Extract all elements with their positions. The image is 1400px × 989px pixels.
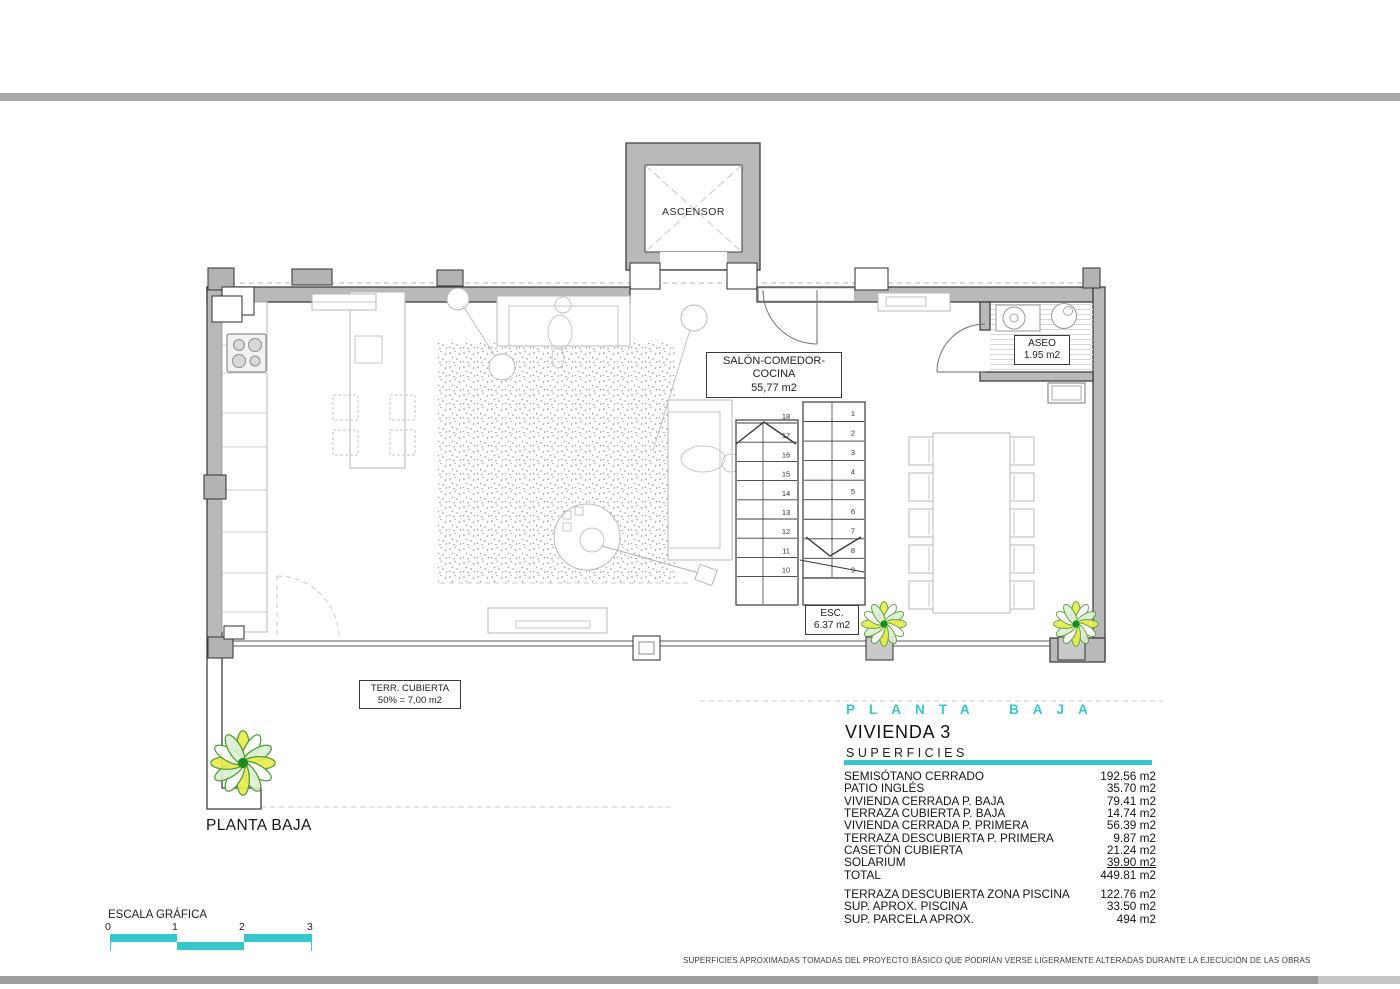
bottom-frame-bar-end	[1318, 976, 1400, 984]
stairs-name: ESC.	[809, 608, 855, 620]
scale-tick: 2	[239, 921, 245, 933]
stair-step-number: 15	[782, 470, 790, 479]
stairs-area: 6.37 m2	[809, 620, 855, 632]
surface-row-value: 494 m2	[1117, 913, 1156, 925]
surface-row-label: SUP. PARCELA APROX.	[844, 913, 974, 925]
terrace-label-box: TERR. CUBIERTA 50% = 7,00 m2	[359, 680, 461, 709]
sink-icon	[1052, 304, 1077, 329]
stair-step-number: 13	[782, 508, 790, 517]
scale-end-tick	[110, 934, 111, 951]
floor-lamp-icon	[681, 305, 707, 331]
stair-step-number: 14	[782, 489, 790, 498]
surface-row-value: 449.81 m2	[1100, 869, 1156, 881]
floor-plan-sheet: 181716151413121110 123456789 ASCENSOR	[0, 0, 1400, 989]
bottom-frame-bar	[0, 976, 1318, 984]
surfaces-rows: SEMISÓTANO CERRADO192.56 m2PATIO INGLÉS3…	[844, 770, 1156, 881]
ascensor-label: ASCENSOR	[645, 206, 742, 218]
stair-step-number: 12	[782, 527, 790, 536]
floor-caption: PLANTA BAJA	[206, 817, 312, 835]
surface-row-label: TOTAL	[844, 869, 881, 881]
plant-icon	[211, 731, 275, 795]
aseo-label-box: ASEO 1.95 m2	[1014, 335, 1070, 365]
stair-step-number: 7	[851, 526, 855, 535]
surface-row: SUP. APROX. PISCINA33.50 m2	[844, 900, 1156, 912]
surface-row-value: 39.90 m2	[1107, 856, 1156, 868]
stair-step-number: 1	[851, 409, 855, 418]
accent-divider-bar	[844, 760, 1152, 765]
graphic-scale: ESCALA GRÁFICA 0 1 2 3	[75, 908, 415, 956]
aseo-room-name: ASEO	[1018, 338, 1066, 350]
salon-room-name: SALÓN-COMEDOR-COCINA	[710, 355, 838, 382]
stair-step-number: 8	[851, 546, 855, 555]
scale-bar-title: ESCALA GRÁFICA	[108, 909, 207, 921]
dining-set	[909, 433, 1034, 613]
surface-row: VIVIENDA CERRADA P. PRIMERA56.39 m2	[844, 819, 1156, 831]
stair-step-number: 2	[851, 429, 855, 438]
stair-step-number: 10	[782, 566, 790, 575]
stair-step-number: 6	[851, 507, 855, 516]
washer-icon	[1003, 307, 1025, 329]
surface-row-value: 33.50 m2	[1107, 900, 1156, 912]
floor-heading: PLANTA BAJA	[846, 702, 1102, 717]
surfaces-table: SEMISÓTANO CERRADO192.56 m2PATIO INGLÉS3…	[844, 770, 1156, 925]
stairs-label-box: ESC. 6.37 m2	[805, 605, 859, 635]
surfaces-heading: SUPERFICIES	[846, 746, 968, 760]
stair-step-number: 4	[851, 468, 855, 477]
unit-heading: VIVIENDA 3	[845, 722, 951, 743]
scale-tick: 3	[307, 921, 313, 933]
scale-segment	[177, 942, 244, 950]
stair-step-number: 11	[782, 546, 790, 555]
scale-segment	[244, 934, 311, 942]
surface-row-label: VIVIENDA CERRADA P. PRIMERA	[844, 819, 1029, 831]
surface-row-label: SOLARIUM	[844, 856, 906, 868]
scale-end-tick	[311, 934, 312, 951]
surface-row-value: 56.39 m2	[1107, 819, 1156, 831]
salon-room-area: 55,77 m2	[710, 382, 838, 395]
stair-step-number: 3	[851, 448, 855, 457]
stairs: 181716151413121110 123456789	[736, 402, 865, 605]
surface-row-label: PATIO INGLÉS	[844, 782, 924, 794]
disclaimer-text: SUPERFICIES APROXIMADAS TOMADAS DEL PROY…	[683, 956, 1310, 965]
surface-row-value: 35.70 m2	[1107, 782, 1156, 794]
scale-segment	[110, 934, 177, 942]
stair-step-number: 16	[782, 450, 790, 459]
surface-row-label: SUP. APROX. PISCINA	[844, 900, 968, 912]
terrace-name: TERR. CUBIERTA	[363, 683, 457, 695]
surface-row: SOLARIUM39.90 m2	[844, 856, 1156, 868]
plants	[211, 602, 1099, 796]
terrace-area: 50% = 7,00 m2	[363, 695, 457, 707]
stair-step-number: 18	[782, 412, 790, 421]
surface-row: TOTAL449.81 m2	[844, 869, 1156, 881]
floor-lamp-icon	[447, 288, 469, 310]
surface-row: SUP. PARCELA APROX.494 m2	[844, 913, 1156, 925]
floor-plan-drawing: 181716151413121110 123456789	[0, 0, 1400, 989]
scale-tick: 0	[105, 921, 111, 933]
stair-step-number: 5	[851, 487, 855, 496]
scale-tick: 1	[172, 921, 178, 933]
salon-label-box: SALÓN-COMEDOR-COCINA 55,77 m2	[706, 352, 842, 398]
aseo-room-area: 1.95 m2	[1018, 350, 1066, 362]
surfaces-extra-rows: TERRAZA DESCUBIERTA ZONA PISCINA122.76 m…	[844, 888, 1156, 925]
surface-row: PATIO INGLÉS35.70 m2	[844, 782, 1156, 794]
